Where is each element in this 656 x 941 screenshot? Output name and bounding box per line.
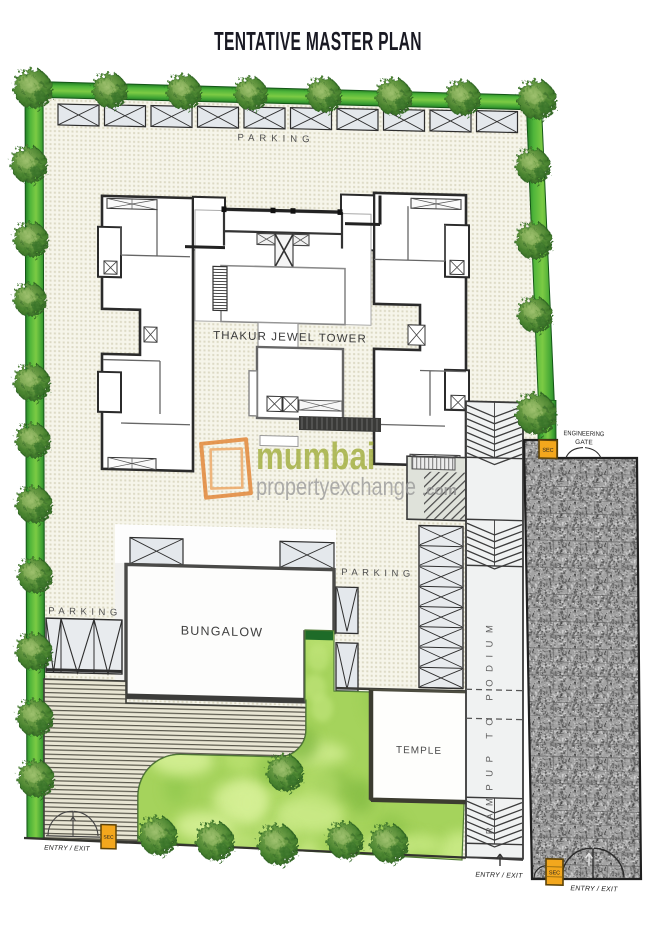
svg-text:mumbai: mumbai xyxy=(256,436,375,478)
svg-text:PARKING: PARKING xyxy=(341,567,415,580)
svg-text:SEC: SEC xyxy=(542,448,553,454)
svg-text:PARKING: PARKING xyxy=(237,132,314,145)
svg-text:.com: .com xyxy=(422,482,457,499)
svg-text:ENGINEERING: ENGINEERING xyxy=(564,430,605,438)
svg-text:PARKING: PARKING xyxy=(48,606,122,619)
svg-text:RAMPUP TO PODIUM: RAMPUP TO PODIUM xyxy=(485,618,496,835)
svg-text:ENTRY / EXIT: ENTRY / EXIT xyxy=(44,845,90,853)
svg-text:TENTATIVE MASTER PLAN: TENTATIVE MASTER PLAN xyxy=(214,27,422,56)
svg-text:TEMPLE: TEMPLE xyxy=(396,745,442,757)
svg-text:GATE: GATE xyxy=(575,439,593,446)
svg-text:SEC: SEC xyxy=(549,870,560,876)
svg-text:propertyexchange: propertyexchange xyxy=(256,473,416,501)
svg-text:ENTRY / EXIT: ENTRY / EXIT xyxy=(570,885,618,893)
svg-text:ENTRY / EXIT: ENTRY / EXIT xyxy=(475,872,523,880)
svg-text:SEC: SEC xyxy=(103,835,114,841)
svg-text:BUNGALOW: BUNGALOW xyxy=(181,624,264,640)
